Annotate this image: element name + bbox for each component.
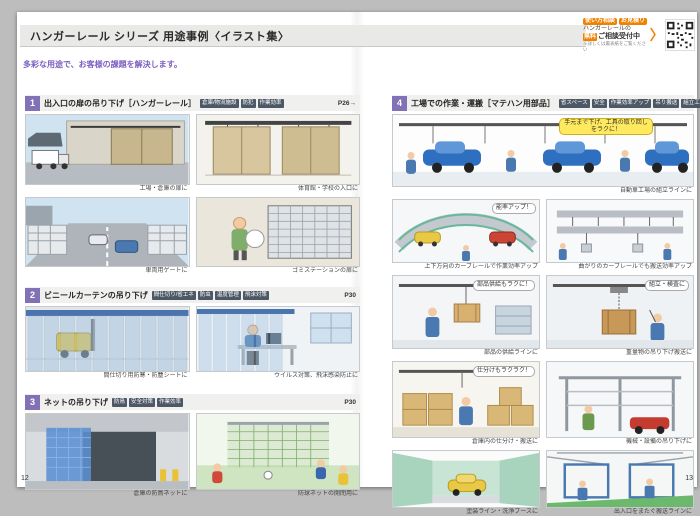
page-number-left: 12	[21, 475, 29, 482]
section-number-badge: 3	[25, 395, 40, 410]
keyword-tag: 吊り搬送	[653, 99, 679, 108]
usage-example-item: 出入口をまたぐ搬送ラインに	[546, 450, 694, 516]
keyword-tag: 作業効率	[258, 99, 284, 108]
section-1-header: 1 出入口の扉の吊り下げ［ハンガーレール］ 倉庫/物流施設 防犯 作業効率 P2…	[25, 95, 360, 111]
section-3-header: 3 ネットの吊り下げ 防鳥 安全対策 作業効率 P30	[25, 394, 360, 410]
illustration-caption: 車両用ゲートに	[25, 267, 190, 275]
keyword-tag: 作業効率アップ	[609, 99, 652, 108]
usage-example-item: 工場・倉庫の扉に	[25, 114, 190, 193]
usage-example-item: 車両用ゲートに	[25, 197, 190, 275]
illustration-doorway-transfer-frame	[546, 450, 694, 508]
keyword-tag: 省スペース	[559, 99, 590, 108]
usage-example-item: 手元まで下げ、工具の取り回しをラクに！ 自動車工場の組立ラインに	[392, 114, 694, 195]
illustration-caption: 曲がりのカーブレールでも搬送効率アップ	[546, 263, 694, 271]
illustration-paint-booth-car	[392, 450, 540, 508]
section-number-badge: 4	[392, 96, 407, 111]
illustration-wooden-sliding-doors	[196, 114, 361, 185]
section-title: ビニールカーテンの吊り下げ	[44, 290, 148, 301]
keyword-tag: 安全	[592, 99, 607, 108]
keyword-tag: 温度管理	[215, 291, 241, 300]
illustration-overhead-conveyor	[546, 199, 694, 263]
illustration-caption: 上下方向のカーブレールで作業効率アップ	[392, 263, 540, 271]
keyword-tag: 防虫	[198, 291, 213, 300]
keyword-tag: 組立工場	[681, 99, 700, 108]
illustration-caption: 部品の供給ラインに	[392, 349, 540, 357]
illustration-caption: 間仕切り用防寒・防塵シートに	[25, 372, 190, 380]
illustration-caption: 重量物の吊り下げ搬送に	[546, 349, 694, 357]
illustration-caption: 防球ネットの開閉用に	[196, 490, 361, 498]
page-number-right: 13	[685, 475, 693, 482]
illustration-forklift-vinyl-curtain	[25, 306, 190, 372]
usage-example-item: 塗装ライン・洗浄ブースに	[392, 450, 540, 516]
usage-example-item: 防球ネットの開閉用に	[196, 413, 361, 498]
catalog-spread: ハンガーレール シリーズ 用途事例〈イラスト集〉 多彩な用途で、お客様の課題を解…	[17, 12, 697, 487]
usage-example-item: 能率アップ！ 上下方向のカーブレールで作業効率アップ	[392, 199, 540, 271]
usage-example-item: ウイルス対策、飛沫感染防止に	[196, 306, 361, 380]
section-title: 工場での作業・運搬［マテハン用部品］	[411, 98, 555, 109]
page-reference: P30	[344, 399, 356, 406]
section-number-badge: 1	[25, 96, 40, 111]
speech-bubble: 組立・検査に	[645, 280, 689, 291]
illustration-parts-supply-station: 部品供給もラクに！	[392, 275, 540, 349]
keyword-tag: 倉庫/物流施設	[200, 99, 239, 108]
section-title: ネットの吊り下げ	[44, 397, 108, 408]
section-number-badge: 2	[25, 288, 40, 303]
section-2-header: 2 ビニールカーテンの吊り下げ 間仕切り/省エネ 防虫 温度管理 飛沫対策 P3…	[25, 287, 360, 303]
keyword-tag: 間仕切り/省エネ	[152, 291, 196, 300]
speech-bubble: 能率アップ！	[492, 203, 536, 214]
illustration-car-assembly-line: 手元まで下げ、工具の取り回しをラクに！	[392, 114, 694, 187]
illustration-caption: 工場・倉庫の扉に	[25, 185, 190, 193]
left-page: 1 出入口の扉の吊り下げ［ハンガーレール］ 倉庫/物流施設 防犯 作業効率 P2…	[25, 12, 360, 487]
usage-example-item: ゴミステーションの扉に	[196, 197, 361, 275]
illustration-caption: ウイルス対策、飛沫感染防止に	[196, 372, 361, 380]
usage-example-item: 体育館・学校の入口に	[196, 114, 361, 193]
illustration-trash-station-door	[196, 197, 361, 267]
illustration-sports-ball-net	[196, 413, 361, 490]
illustration-street-gate	[25, 197, 190, 267]
illustration-factory-harbor-door	[25, 114, 190, 185]
keyword-tag: 防犯	[241, 99, 256, 108]
illustration-hoist-box: 組立・検査に	[546, 275, 694, 349]
illustration-caption: 体育館・学校の入口に	[196, 185, 361, 193]
illustration-caption: ゴミステーションの扉に	[196, 267, 361, 275]
illustration-caption: 機械・設備の吊り下げに	[546, 438, 694, 446]
speech-bubble: 手元まで下げ、工具の取り回しをラクに！	[559, 118, 653, 135]
keyword-tag: 飛沫対策	[243, 291, 269, 300]
section-4-header: 4 工場での作業・運搬［マテハン用部品］ 省スペース 安全 作業効率アップ 吊り…	[392, 95, 694, 111]
usage-example-item: 組立・検査に 重量物の吊り下げ搬送に	[546, 275, 694, 357]
usage-example-item: 仕分けもラクラク！ 倉庫内の仕分け・搬送に	[392, 361, 540, 446]
page-reference: P26→	[338, 100, 356, 107]
illustration-office-vinyl-partition	[196, 306, 361, 372]
illustration-caption: 倉庫の防鳥ネットに	[25, 490, 190, 498]
usage-example-item: 倉庫の防鳥ネットに	[25, 413, 190, 498]
illustration-caption: 倉庫内の仕分け・搬送に	[392, 438, 540, 446]
keyword-tag: 安全対策	[129, 398, 155, 407]
illustration-bird-net-entrance	[25, 413, 190, 490]
usage-example-item: 間仕切り用防寒・防塵シートに	[25, 306, 190, 380]
right-page: 4 工場での作業・運搬［マテハン用部品］ 省スペース 安全 作業効率アップ 吊り…	[392, 12, 694, 487]
speech-bubble: 部品供給もラクに！	[473, 280, 535, 291]
speech-bubble: 仕分けもラクラク！	[473, 366, 535, 377]
illustration-rail-frame-carport	[546, 361, 694, 438]
usage-example-item: 機械・設備の吊り下げに	[546, 361, 694, 446]
page-reference: P30	[344, 292, 356, 299]
illustration-caption: 自動車工場の組立ラインに	[392, 187, 694, 195]
usage-example-item: 曲がりのカーブレールでも搬送効率アップ	[546, 199, 694, 271]
usage-example-item: 部品供給もラクに！ 部品の供給ラインに	[392, 275, 540, 357]
keyword-tag: 作業効率	[157, 398, 183, 407]
section-title: 出入口の扉の吊り下げ［ハンガーレール］	[44, 98, 196, 109]
illustration-caption: 出入口をまたぐ搬送ラインに	[546, 508, 694, 516]
illustration-caption: 塗装ライン・洗浄ブースに	[392, 508, 540, 516]
illustration-curve-rail-cars: 能率アップ！	[392, 199, 540, 263]
keyword-tag: 防鳥	[112, 398, 127, 407]
illustration-warehouse-boxes: 仕分けもラクラク！	[392, 361, 540, 438]
